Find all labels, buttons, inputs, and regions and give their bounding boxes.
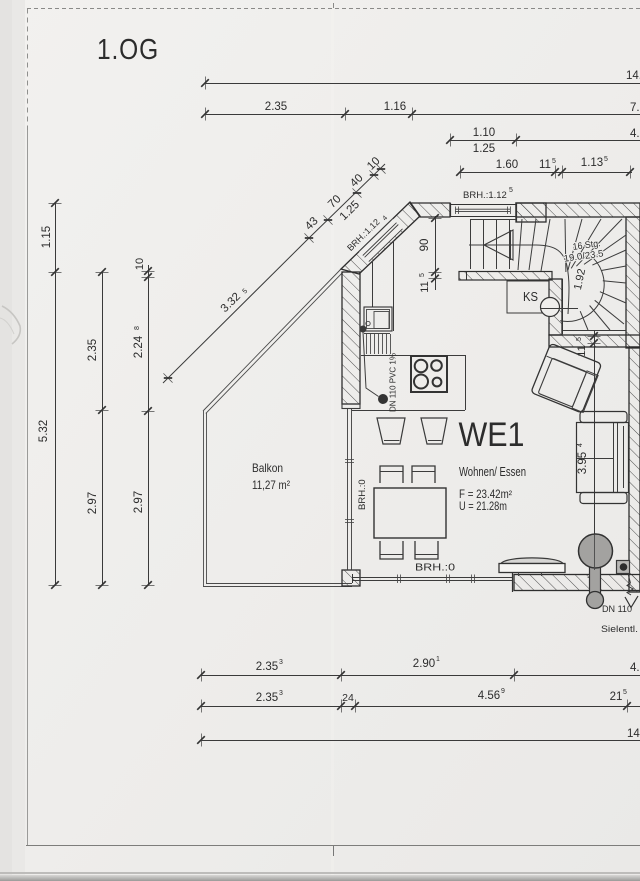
svg-text:2.97: 2.97 <box>133 491 145 513</box>
svg-text:2.35: 2.35 <box>87 339 99 361</box>
svg-text:1.OG: 1.OG <box>97 34 159 66</box>
svg-text:5: 5 <box>509 187 513 194</box>
svg-text:9: 9 <box>501 688 505 695</box>
svg-text:11: 11 <box>419 281 431 292</box>
svg-text:1: 1 <box>436 656 440 663</box>
svg-text:14.: 14. <box>626 70 640 82</box>
svg-text:4.2: 4.2 <box>630 662 640 674</box>
svg-text:DN 110 PVC 1%: DN 110 PVC 1% <box>389 353 398 412</box>
svg-text:1.10: 1.10 <box>473 127 495 139</box>
svg-text:BRH.:0: BRH.:0 <box>357 479 368 510</box>
svg-text:2.24: 2.24 <box>133 335 145 358</box>
svg-text:3: 3 <box>279 659 283 666</box>
svg-text:WE1: WE1 <box>459 416 525 454</box>
svg-text:24: 24 <box>342 692 354 704</box>
svg-text:3: 3 <box>279 690 283 697</box>
svg-text:3.95: 3.95 <box>577 452 589 474</box>
svg-text:11: 11 <box>539 159 551 171</box>
svg-text:2.90: 2.90 <box>413 658 435 670</box>
svg-text:2.35: 2.35 <box>265 101 287 113</box>
svg-text:1.25: 1.25 <box>473 143 495 155</box>
svg-text:4.: 4. <box>630 128 640 140</box>
svg-text:Sielentl.: Sielentl. <box>601 624 638 635</box>
svg-text:5.32: 5.32 <box>38 420 50 442</box>
svg-text:DN 110: DN 110 <box>602 604 632 614</box>
svg-text:4: 4 <box>577 443 584 447</box>
svg-text:BRH.:1.12: BRH.:1.12 <box>463 190 507 201</box>
svg-text:5: 5 <box>604 156 608 163</box>
svg-text:4.56: 4.56 <box>478 690 500 702</box>
svg-text:21: 21 <box>610 691 623 703</box>
svg-text:90: 90 <box>419 239 431 252</box>
svg-text:7.: 7. <box>630 102 640 114</box>
svg-text:Balkon: Balkon <box>252 461 283 475</box>
svg-text:1.16: 1.16 <box>384 101 406 113</box>
svg-text:2.35: 2.35 <box>256 692 278 704</box>
svg-text:Wohnen/ Essen: Wohnen/ Essen <box>459 464 526 479</box>
svg-text:10: 10 <box>134 258 146 270</box>
svg-text:5: 5 <box>552 158 556 165</box>
svg-text:2.35: 2.35 <box>256 661 278 673</box>
svg-text:1.13: 1.13 <box>581 157 603 169</box>
svg-text:F = 23.42m²: F = 23.42m² <box>459 489 512 501</box>
svg-text:8: 8 <box>134 326 141 330</box>
svg-text:5: 5 <box>419 273 426 277</box>
svg-text:KS: KS <box>523 290 538 304</box>
svg-text:11,27 m²: 11,27 m² <box>252 478 290 492</box>
svg-text:1.15: 1.15 <box>41 226 53 248</box>
svg-text:5: 5 <box>623 689 627 696</box>
svg-text:1.60: 1.60 <box>496 159 518 171</box>
svg-text:14.1: 14.1 <box>627 728 640 740</box>
svg-text:BRH.:0: BRH.:0 <box>415 563 456 574</box>
svg-text:U = 21.28m: U = 21.28m <box>459 501 507 513</box>
svg-text:2.97: 2.97 <box>87 492 99 514</box>
